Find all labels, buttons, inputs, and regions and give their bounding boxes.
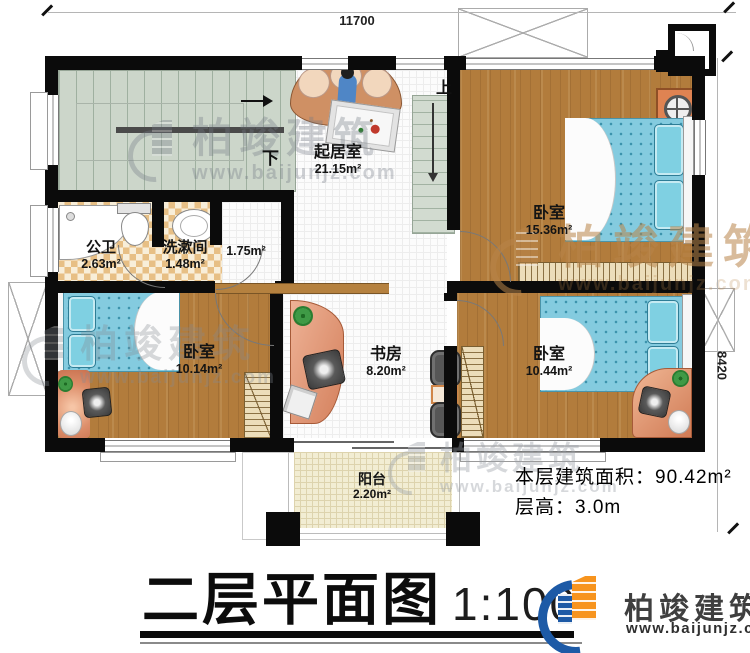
window-sill <box>30 205 48 277</box>
chimney-flue-line <box>677 33 694 51</box>
roof-skylight-left <box>8 282 48 396</box>
staircase-down <box>58 70 296 192</box>
window-sill <box>460 452 606 462</box>
sliding-door-line <box>294 441 394 443</box>
dimension-line-top <box>48 12 736 13</box>
room-label-bathroom: 公卫2.63m² <box>56 240 146 271</box>
stair-arrow-head <box>263 95 273 107</box>
wall-segment <box>45 56 58 95</box>
shower-drain <box>66 212 75 221</box>
wall-segment <box>281 190 294 283</box>
plant-bedroom-left <box>58 376 73 392</box>
floor-plan-canvas: 柏竣建筑 www.baijunjz.com 柏竣建筑 www.baijunjz.… <box>0 0 750 653</box>
room-label-hallway: 1.75m² <box>213 244 279 258</box>
room-label-balcony: 阳台2.20m² <box>327 472 417 501</box>
logo-url-text: www.baijunjz.com <box>626 620 750 637</box>
window-sill <box>30 92 48 170</box>
plant-bedroom-right <box>672 370 689 387</box>
roof-skylight-top <box>458 8 588 58</box>
balcony-post <box>266 512 300 546</box>
window <box>396 58 444 70</box>
balcony-post <box>446 512 480 546</box>
wall-segment <box>692 175 705 452</box>
wall-segment <box>444 293 457 301</box>
logo-building-icon <box>536 572 618 650</box>
wall-segment <box>452 438 464 452</box>
room-label-bedroom-top: 卧室15.36m² <box>504 205 594 237</box>
coffee-table-top <box>332 105 394 147</box>
plant-study <box>293 306 313 326</box>
dimension-right-value: 8420 <box>715 336 730 396</box>
wall-segment <box>48 56 302 70</box>
wall-segment <box>692 56 705 120</box>
stair-up-label: 上 <box>436 74 452 98</box>
dimension-top-value: 11700 <box>328 13 386 28</box>
stair-down-label: 下 <box>262 144 279 169</box>
window <box>105 440 230 452</box>
brand-logo: 柏竣建筑 www.baijunjz.com <box>536 572 748 650</box>
wall-segment <box>444 346 457 438</box>
dimension-tick <box>721 50 733 62</box>
wall-segment <box>348 56 396 70</box>
wall-segment <box>45 438 105 452</box>
logo-building-blue <box>558 594 572 624</box>
room-label-living: 起居室21.15m² <box>293 144 383 176</box>
wall-segment <box>600 438 705 452</box>
wall-segment <box>45 272 58 452</box>
dimension-tick <box>41 4 53 16</box>
window <box>694 120 706 175</box>
stair-up-arrow-line <box>432 103 434 175</box>
stair-handrail <box>116 127 284 133</box>
computer-bedroom-right <box>637 385 671 418</box>
drawing-title: 二层平面图 1:100 <box>142 572 577 629</box>
lamp-bedroom-left <box>60 411 82 436</box>
floor-area-text: 本层建筑面积：90.42m² <box>515 462 732 489</box>
wall-segment <box>45 281 215 293</box>
title-underline <box>140 631 574 638</box>
wall-segment <box>210 202 222 245</box>
wall-segment <box>45 190 294 202</box>
window-sill <box>100 452 236 462</box>
title-text: 二层平面图 <box>142 572 442 629</box>
dimension-line-right <box>717 58 718 532</box>
tv-bedroom-left <box>82 387 113 419</box>
dimension-tick <box>727 522 739 534</box>
window <box>47 95 59 165</box>
sink-inner <box>180 215 208 237</box>
window <box>464 440 600 452</box>
room-label-study: 书房8.20m² <box>341 346 431 378</box>
lamp-bedroom-right <box>668 410 690 434</box>
stair-arrow-line <box>241 100 263 102</box>
room-label-bedroom-right: 卧室10.44m² <box>504 346 594 378</box>
wardrobe-bedroom-left <box>244 372 272 439</box>
floor-height-text: 层高：3.0m <box>515 492 621 519</box>
logo-building-orange <box>572 576 596 620</box>
window <box>466 58 654 70</box>
wall-segment <box>230 438 294 452</box>
window <box>302 58 348 70</box>
sliding-door-line <box>352 447 452 449</box>
stair-up-arrow-head <box>428 173 438 182</box>
wall-segment <box>447 281 705 293</box>
room-label-bedroom-left: 卧室10.14m² <box>154 344 244 376</box>
title-underline-thin <box>140 642 582 644</box>
wardrobe-bedroom-right <box>461 346 484 438</box>
